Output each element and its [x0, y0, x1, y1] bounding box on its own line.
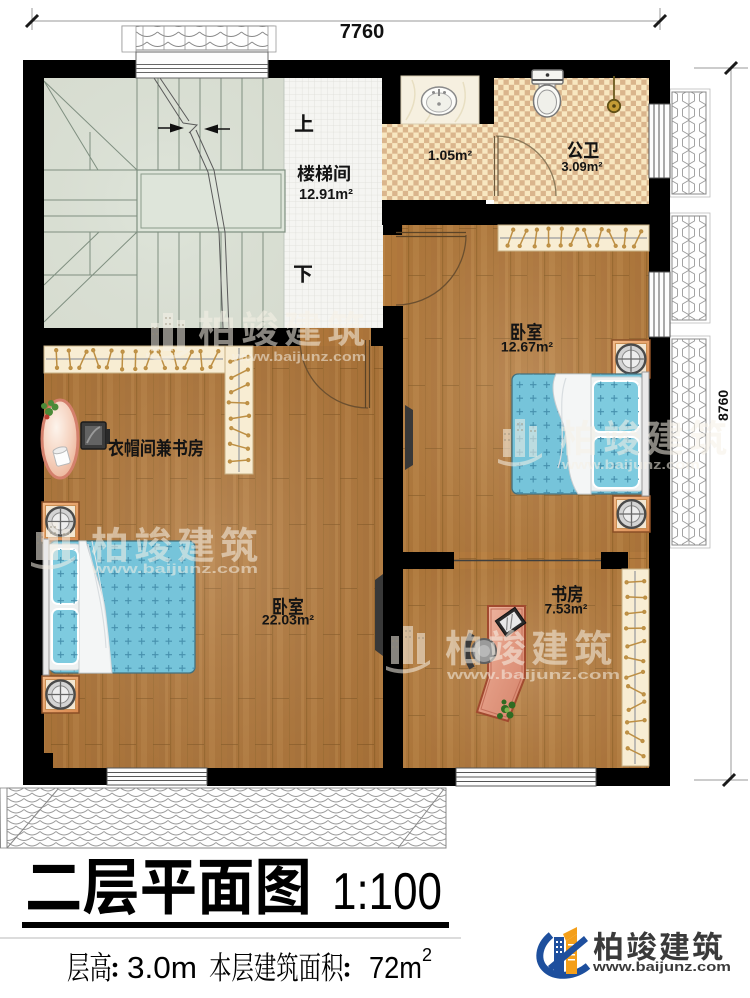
svg-text:www.baijunz.com: www.baijunz.com	[89, 561, 258, 576]
svg-text:72m: 72m	[369, 950, 422, 985]
svg-text:www.baijunz.com: www.baijunz.com	[592, 959, 731, 974]
svg-text:22.03m²: 22.03m²	[262, 612, 314, 628]
svg-text:7.53m²: 7.53m²	[545, 602, 588, 617]
svg-text:8760: 8760	[715, 390, 731, 421]
svg-text:1.05m²: 1.05m²	[428, 147, 473, 163]
svg-text:www.baijunz.com: www.baijunz.com	[445, 667, 620, 682]
svg-text:2: 2	[422, 945, 432, 965]
svg-text:3.0m: 3.0m	[127, 950, 197, 985]
svg-text:12.91m²: 12.91m²	[299, 187, 353, 203]
svg-text:12.67m²: 12.67m²	[501, 339, 553, 355]
svg-text:3.09m²: 3.09m²	[561, 159, 603, 174]
svg-text:7760: 7760	[340, 21, 385, 43]
svg-text:www.baijunz.com: www.baijunz.com	[561, 457, 700, 472]
svg-text:1:100: 1:100	[332, 863, 442, 921]
svg-text:www.baijunz.com: www.baijunz.com	[231, 349, 366, 364]
